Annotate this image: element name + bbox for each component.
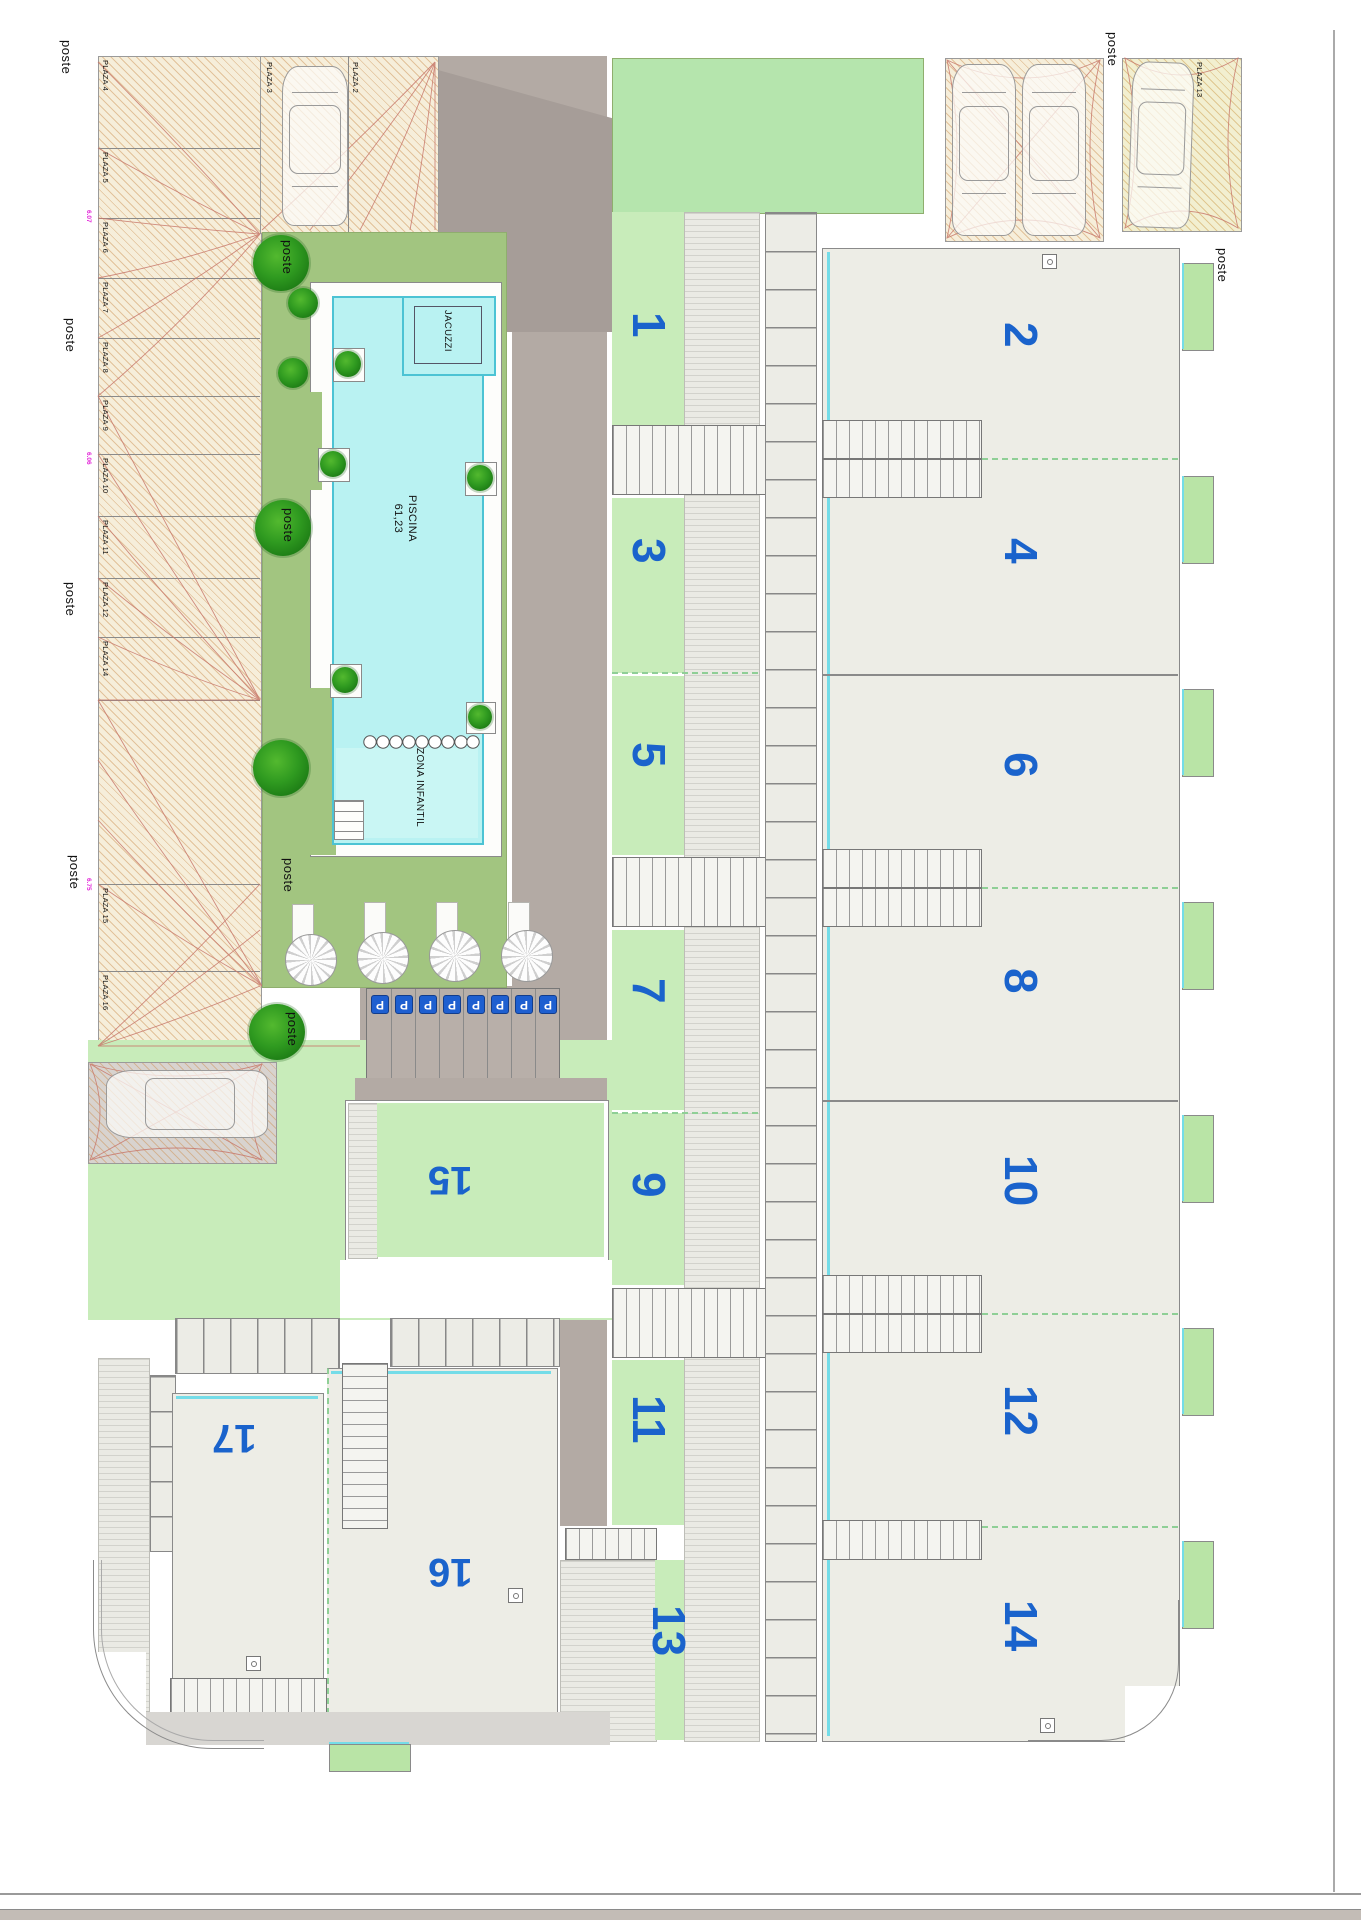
stairs [822,1314,982,1353]
plaza-label-11: PLAZA 11 [101,520,110,555]
unit-number-7: 7 [626,978,672,1004]
parking-sign-icon: P [539,995,557,1014]
unit-number-16: 16 [428,1552,473,1592]
plaza-label-10: PLAZA 10 [101,458,110,493]
balcony [1182,263,1214,351]
car-icon [952,64,1016,236]
tree-icon [253,740,309,796]
stairs [565,1528,657,1560]
parking-sign-icon: P [491,995,509,1014]
storage-lockers [390,1318,560,1367]
unit-number-4: 4 [998,538,1044,564]
kids-zone-label: ZONA INFANTIL [413,748,426,827]
plaza-label-15: PLAZA 15 [101,888,110,923]
parking-band-left [98,56,262,1048]
unit-garden [612,930,684,1110]
car-icon [282,66,348,226]
utility-box-icon [1042,254,1057,269]
poste-label: poste [285,1012,300,1046]
plaza-label-2: PLAZA 2 [351,62,360,93]
unit-number-15: 15 [428,1160,473,1200]
tree-icon [467,465,493,491]
unit-garden [377,1103,604,1257]
parking-sign-icon: P [395,995,413,1014]
plaza-label-13: PLAZA 13 [1195,62,1204,97]
tree-icon [468,705,492,729]
poste-label: poste [59,40,74,74]
unit-number-17: 17 [212,1418,257,1458]
balcony [1182,1115,1214,1203]
stairs [822,420,982,459]
poste-label: poste [281,858,296,892]
plaza-label-9: PLAZA 9 [101,400,110,431]
balcony [1182,1328,1214,1416]
unit-number-3: 3 [626,538,672,564]
stairs [612,425,774,495]
band-taupe [355,1078,607,1102]
plaza-label-16: PLAZA 16 [101,975,110,1010]
poste-label: poste [63,582,78,616]
balcony [1182,902,1214,990]
utility-box-icon [508,1588,523,1603]
parking-sign-icon: P [467,995,485,1014]
balcony [1182,476,1214,564]
storage-lockers [175,1318,340,1374]
unit-number-6: 6 [998,752,1044,778]
tree-icon [278,358,308,388]
unit-number-1: 1 [626,312,672,338]
utility-box-icon [246,1656,261,1671]
poste-label: poste [1215,248,1230,282]
unit-number-2: 2 [998,322,1044,348]
tree-icon [335,351,361,377]
unit-number-9: 9 [626,1172,672,1198]
stairs [612,857,774,927]
parking-sign-icon: P [515,995,533,1014]
plaza-label-3: PLAZA 3 [265,62,274,93]
parking-sign-icon: P [371,995,389,1014]
parking-sign-icon: P [443,995,461,1014]
parasol-icon [429,930,481,982]
pool-label: PISCINA 61,23 [391,495,419,542]
poste-label: poste [67,855,82,889]
stairs [822,1520,982,1560]
unit-number-14: 14 [998,1600,1044,1651]
plaza-label-5: PLAZA 5 [101,152,110,183]
stairs [822,459,982,498]
unit-number-8: 8 [998,968,1044,994]
parking-sign-icon: P [419,995,437,1014]
parasol-icon [285,934,337,986]
stairs [342,1363,388,1529]
unit-garden [612,498,684,673]
car-icon [1022,64,1086,236]
car-icon [1127,61,1195,229]
unit-number-12: 12 [998,1385,1044,1436]
balcony [1182,1541,1214,1629]
plaza-label-6: PLAZA 6 [101,222,110,253]
poste-label: poste [1105,32,1120,66]
jacuzzi-label: JACUZZI [441,310,453,352]
plaza-label-8: PLAZA 8 [101,342,110,373]
utility-box-icon [1040,1718,1055,1733]
parasol-icon [357,932,409,984]
balcony [329,1744,411,1772]
poste-label: poste [281,508,296,542]
unit-number-10: 10 [998,1155,1044,1206]
boundary-dashed [612,1112,758,1114]
poste-label: poste [63,318,78,352]
plaza-label-14: PLAZA 14 [101,641,110,676]
pool-steps [334,800,364,840]
terrace-strip [348,1103,378,1259]
stairs [822,1275,982,1314]
lawn-top [612,58,924,214]
car-icon [106,1070,268,1138]
tree-icon [332,667,358,693]
unit-garden [612,1113,684,1285]
plaza-label-4: PLAZA 4 [101,60,110,91]
dimension-label: 6.75 [85,878,92,891]
stairs [822,888,982,927]
stairs [822,849,982,888]
boundary-dashed [612,672,758,674]
unit-number-5: 5 [626,742,672,768]
storage-lockers [765,212,817,1742]
tree-icon [320,451,346,477]
site-plan: JACUZZI PISCINA 61,23 ZONA INFANTIL P P [0,0,1361,1920]
plaza-label-12: PLAZA 12 [101,582,110,617]
poste-label: poste [280,240,295,274]
frame-bottom-band [0,1909,1361,1920]
dimension-label: 6.07 [85,210,92,223]
parasol-icon [501,930,553,982]
unit-number-11: 11 [626,1395,672,1444]
stairs [612,1288,774,1358]
dimension-label: 6.06 [85,452,92,465]
plaza-label-7: PLAZA 7 [101,282,110,313]
unit-number-13: 13 [646,1605,692,1656]
tree-icon [288,288,318,318]
frame-right-line [1333,30,1335,1892]
balcony [1182,689,1214,777]
frame-bottom-line [0,1893,1361,1895]
white-band [340,1260,612,1318]
